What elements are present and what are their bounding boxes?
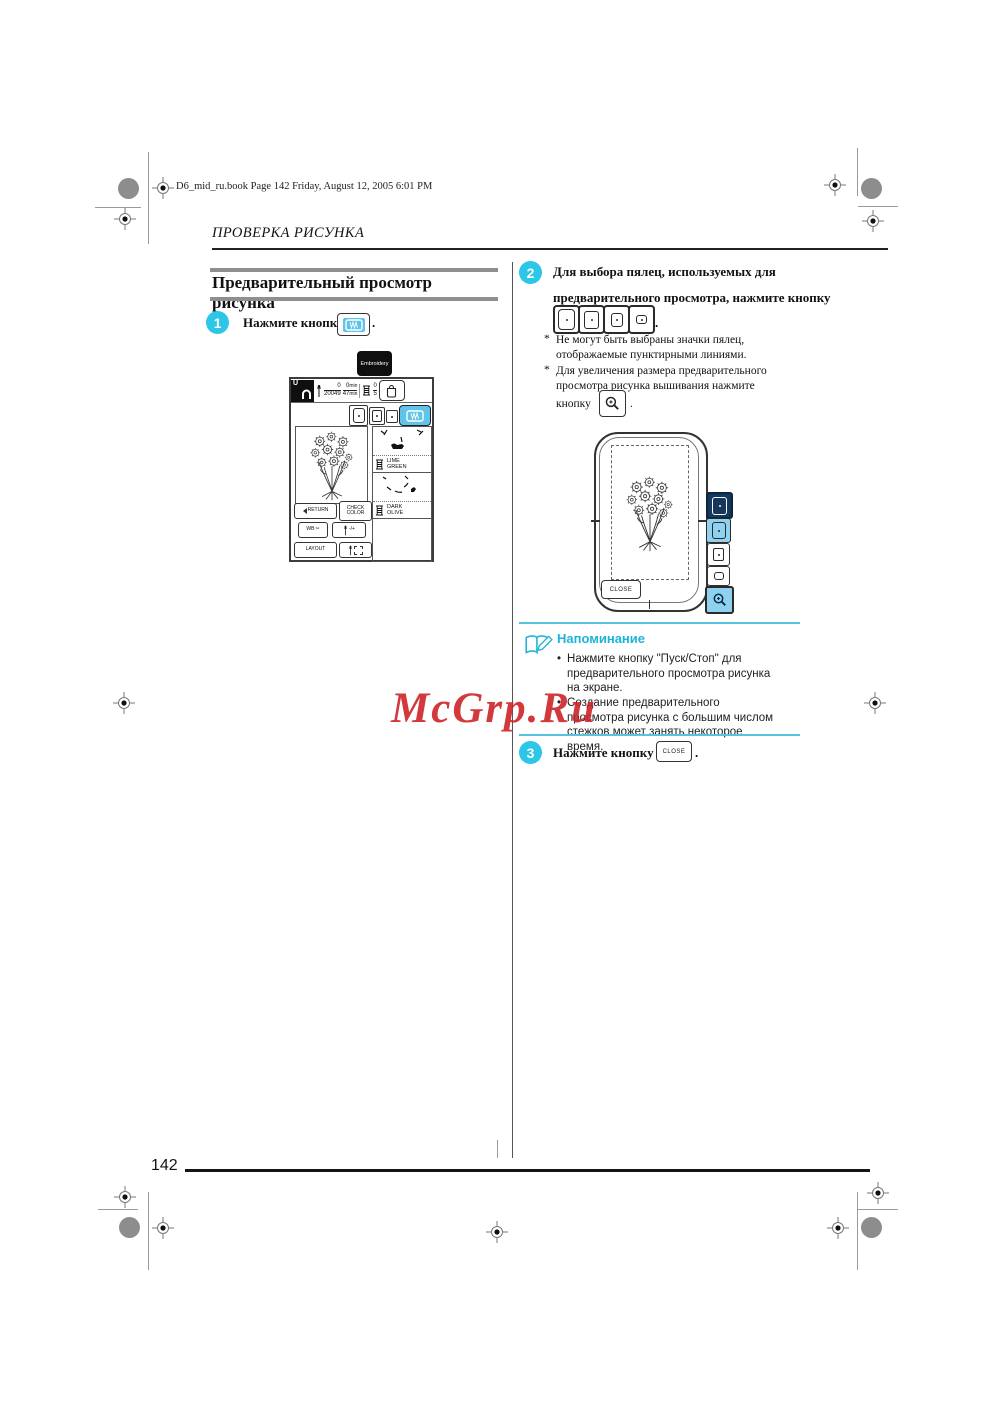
step-3-text: Нажмите кнопку [553, 745, 654, 761]
memo-book-icon [523, 632, 553, 658]
registration-mark-icon [486, 1221, 508, 1243]
trim-line [95, 207, 141, 208]
step-3-number: 3 [527, 745, 535, 761]
return-button-illustration: RETURN [294, 503, 337, 519]
layout-label: LAYOUT [306, 547, 326, 553]
print-dot [861, 178, 882, 199]
hoop-select-large-button [553, 305, 580, 334]
step-3-period: . [695, 745, 698, 761]
embroidery-tab: Embroidery [357, 351, 392, 376]
close-button-illustration: CLOSE [601, 580, 641, 599]
screen-toolbar: U 0 20049 0min 47min 0 5 [291, 379, 432, 403]
density-label: -/+ [349, 527, 355, 533]
step-2-number: 2 [527, 265, 535, 281]
retrieve-button-illustration [379, 380, 405, 401]
hoop-select-small-button [603, 305, 630, 334]
embroidery-unit-icon: U [291, 380, 314, 402]
embroidery-frame-icon [406, 410, 424, 422]
hoop-size-mini-button [707, 566, 730, 586]
print-dot [119, 1217, 140, 1238]
trim-line [148, 1192, 149, 1270]
print-dot [861, 1217, 882, 1238]
chevron-left-icon [303, 508, 307, 514]
hoop-preview-figure: CLOSE [594, 428, 734, 612]
needle-icon [343, 525, 348, 536]
thread-trim-button-illustration: WB ✂ [298, 522, 328, 538]
hoop-select-mini-button [628, 305, 655, 334]
flower-bouquet-art [302, 429, 362, 501]
time-unit: min [349, 391, 357, 397]
trim-line [858, 206, 898, 207]
note-2-period: . [630, 397, 640, 412]
note-asterisk: * [544, 364, 550, 376]
registration-mark-icon [152, 1217, 174, 1239]
trim-line [857, 148, 858, 196]
pattern-preview-area [295, 426, 368, 504]
preview-button-highlighted [399, 405, 431, 426]
header-rule [212, 248, 888, 250]
color-counter: 0 5 [373, 383, 376, 398]
section-title: Предварительный просмотр рисунка [212, 273, 498, 313]
close-label: CLOSE [610, 587, 633, 593]
spool-icon [362, 385, 371, 396]
hoop-size-large-icon [349, 405, 368, 426]
note-1-text: Не могут быть выбраны значки пялец, отоб… [556, 333, 768, 363]
reminder-rule-bottom [519, 734, 800, 736]
density-button-illustration: -/+ [332, 522, 366, 538]
bag-icon [385, 384, 398, 398]
embroidery-area [611, 445, 689, 580]
step-3-badge: 3 [519, 741, 542, 764]
hoop-size-large-selected-button [706, 492, 733, 519]
spool-icon [375, 459, 384, 470]
color-total: 5 [373, 390, 376, 398]
registration-mark-icon [114, 1186, 136, 1208]
step-1-badge: 1 [206, 311, 229, 334]
hoop-size-small-icon [386, 410, 398, 423]
thread1-name-l2: GREEN [387, 464, 407, 470]
magnifier-icon [712, 592, 728, 608]
hoop-center-mark [649, 600, 650, 609]
registration-mark-icon [867, 1182, 889, 1204]
stitch-total: 20049 [324, 390, 341, 398]
registration-mark-icon [864, 692, 886, 714]
hoop-glyph-icon [301, 389, 313, 401]
embroidery-frame-icon [343, 318, 365, 332]
close-label: CLOSE [663, 749, 686, 755]
needle-icon [316, 384, 322, 398]
registration-mark-icon [827, 1217, 849, 1239]
unit-label: U [293, 380, 298, 387]
step-2-badge: 2 [519, 261, 542, 284]
registration-mark-icon [113, 692, 135, 714]
registration-mark-icon [824, 174, 846, 196]
reminder-item-text: Нажмите кнопку "Пуск/Стоп" для предварит… [567, 652, 779, 696]
screen-button-grid: RETURN CHECK COLOR WB ✂ -/+ LAYOUT [292, 501, 431, 559]
trim-line [148, 152, 149, 244]
reminder-title: Напоминание [557, 631, 645, 646]
trial-button-illustration [339, 542, 372, 558]
page-number: 142 [151, 1157, 178, 1175]
note-asterisk: * [544, 333, 550, 345]
step-2-line1: Для выбора пялец, используемых для [553, 264, 776, 280]
hoop-clamp-left [591, 520, 600, 522]
trim-line [857, 1192, 858, 1270]
registration-mark-icon [114, 208, 136, 230]
time-counter: 0min 47min [343, 383, 358, 398]
title-bar-top [210, 268, 498, 272]
stitch-current: 0 [337, 383, 340, 390]
hoop-size-medium-button [706, 518, 731, 543]
step-1-number: 1 [214, 315, 222, 331]
registration-mark-icon [152, 177, 174, 199]
time-unit: min [349, 383, 357, 389]
stitch-counter: 0 20049 [324, 383, 341, 398]
trim-line [858, 1209, 898, 1210]
pattern-fragment-art [373, 427, 429, 453]
watermark: McGrp.Ru [391, 684, 597, 733]
hoop-size-medium-icon [369, 407, 385, 425]
step-1-period: . [372, 315, 375, 331]
dashed-frame-icon [354, 546, 363, 555]
check-label-l2: COLOR [347, 510, 365, 516]
machine-screen-figure: Embroidery U 0 20049 0min 47min [289, 351, 434, 562]
enlarge-button-illustration [599, 390, 626, 417]
check-color-button-illustration: CHECK COLOR [339, 501, 372, 521]
color-current: 0 [373, 383, 376, 390]
manual-page: D6_mid_ru.book Page 142 Friday, August 1… [0, 0, 1000, 1414]
step-2-period: . [655, 315, 658, 331]
toolbar-separator [359, 384, 360, 398]
trim-line [98, 1209, 138, 1210]
trim-label: WB [306, 527, 314, 533]
hoop-select-medium-button [578, 305, 605, 334]
footer-rule [185, 1169, 870, 1172]
print-dot [118, 178, 139, 199]
preview-button-illustration [337, 313, 370, 336]
step-1-text: Нажмите кнопку [243, 315, 344, 331]
note-2-text: Для увеличения размера предварительного … [556, 364, 768, 394]
running-head: ПРОВЕРКА РИСУНКА [212, 225, 364, 242]
return-label: RETURN [308, 508, 329, 514]
hoop-size-small-button [707, 543, 730, 566]
reminder-rule-top [519, 622, 800, 624]
registration-mark-icon [862, 210, 884, 232]
needle-icon [348, 545, 353, 556]
flower-bouquet-art [622, 470, 678, 556]
layout-button-illustration: LAYOUT [294, 542, 337, 558]
print-file-header: D6_mid_ru.book Page 142 Friday, August 1… [176, 181, 432, 192]
enlarge-preview-button [705, 586, 734, 614]
title-bar-bottom [210, 297, 498, 301]
machine-screen-body: U 0 20049 0min 47min 0 5 [289, 377, 434, 562]
magnifier-icon [604, 395, 621, 412]
scissors-icon: ✂ [315, 527, 319, 533]
trim-line [497, 1140, 498, 1158]
thread-color-1: LIME GREEN [373, 456, 431, 472]
pattern-fragment-art [373, 473, 429, 499]
close-button-inline: CLOSE [656, 741, 692, 762]
step-2-line2: предварительного просмотра, нажмите кноп… [553, 290, 831, 306]
